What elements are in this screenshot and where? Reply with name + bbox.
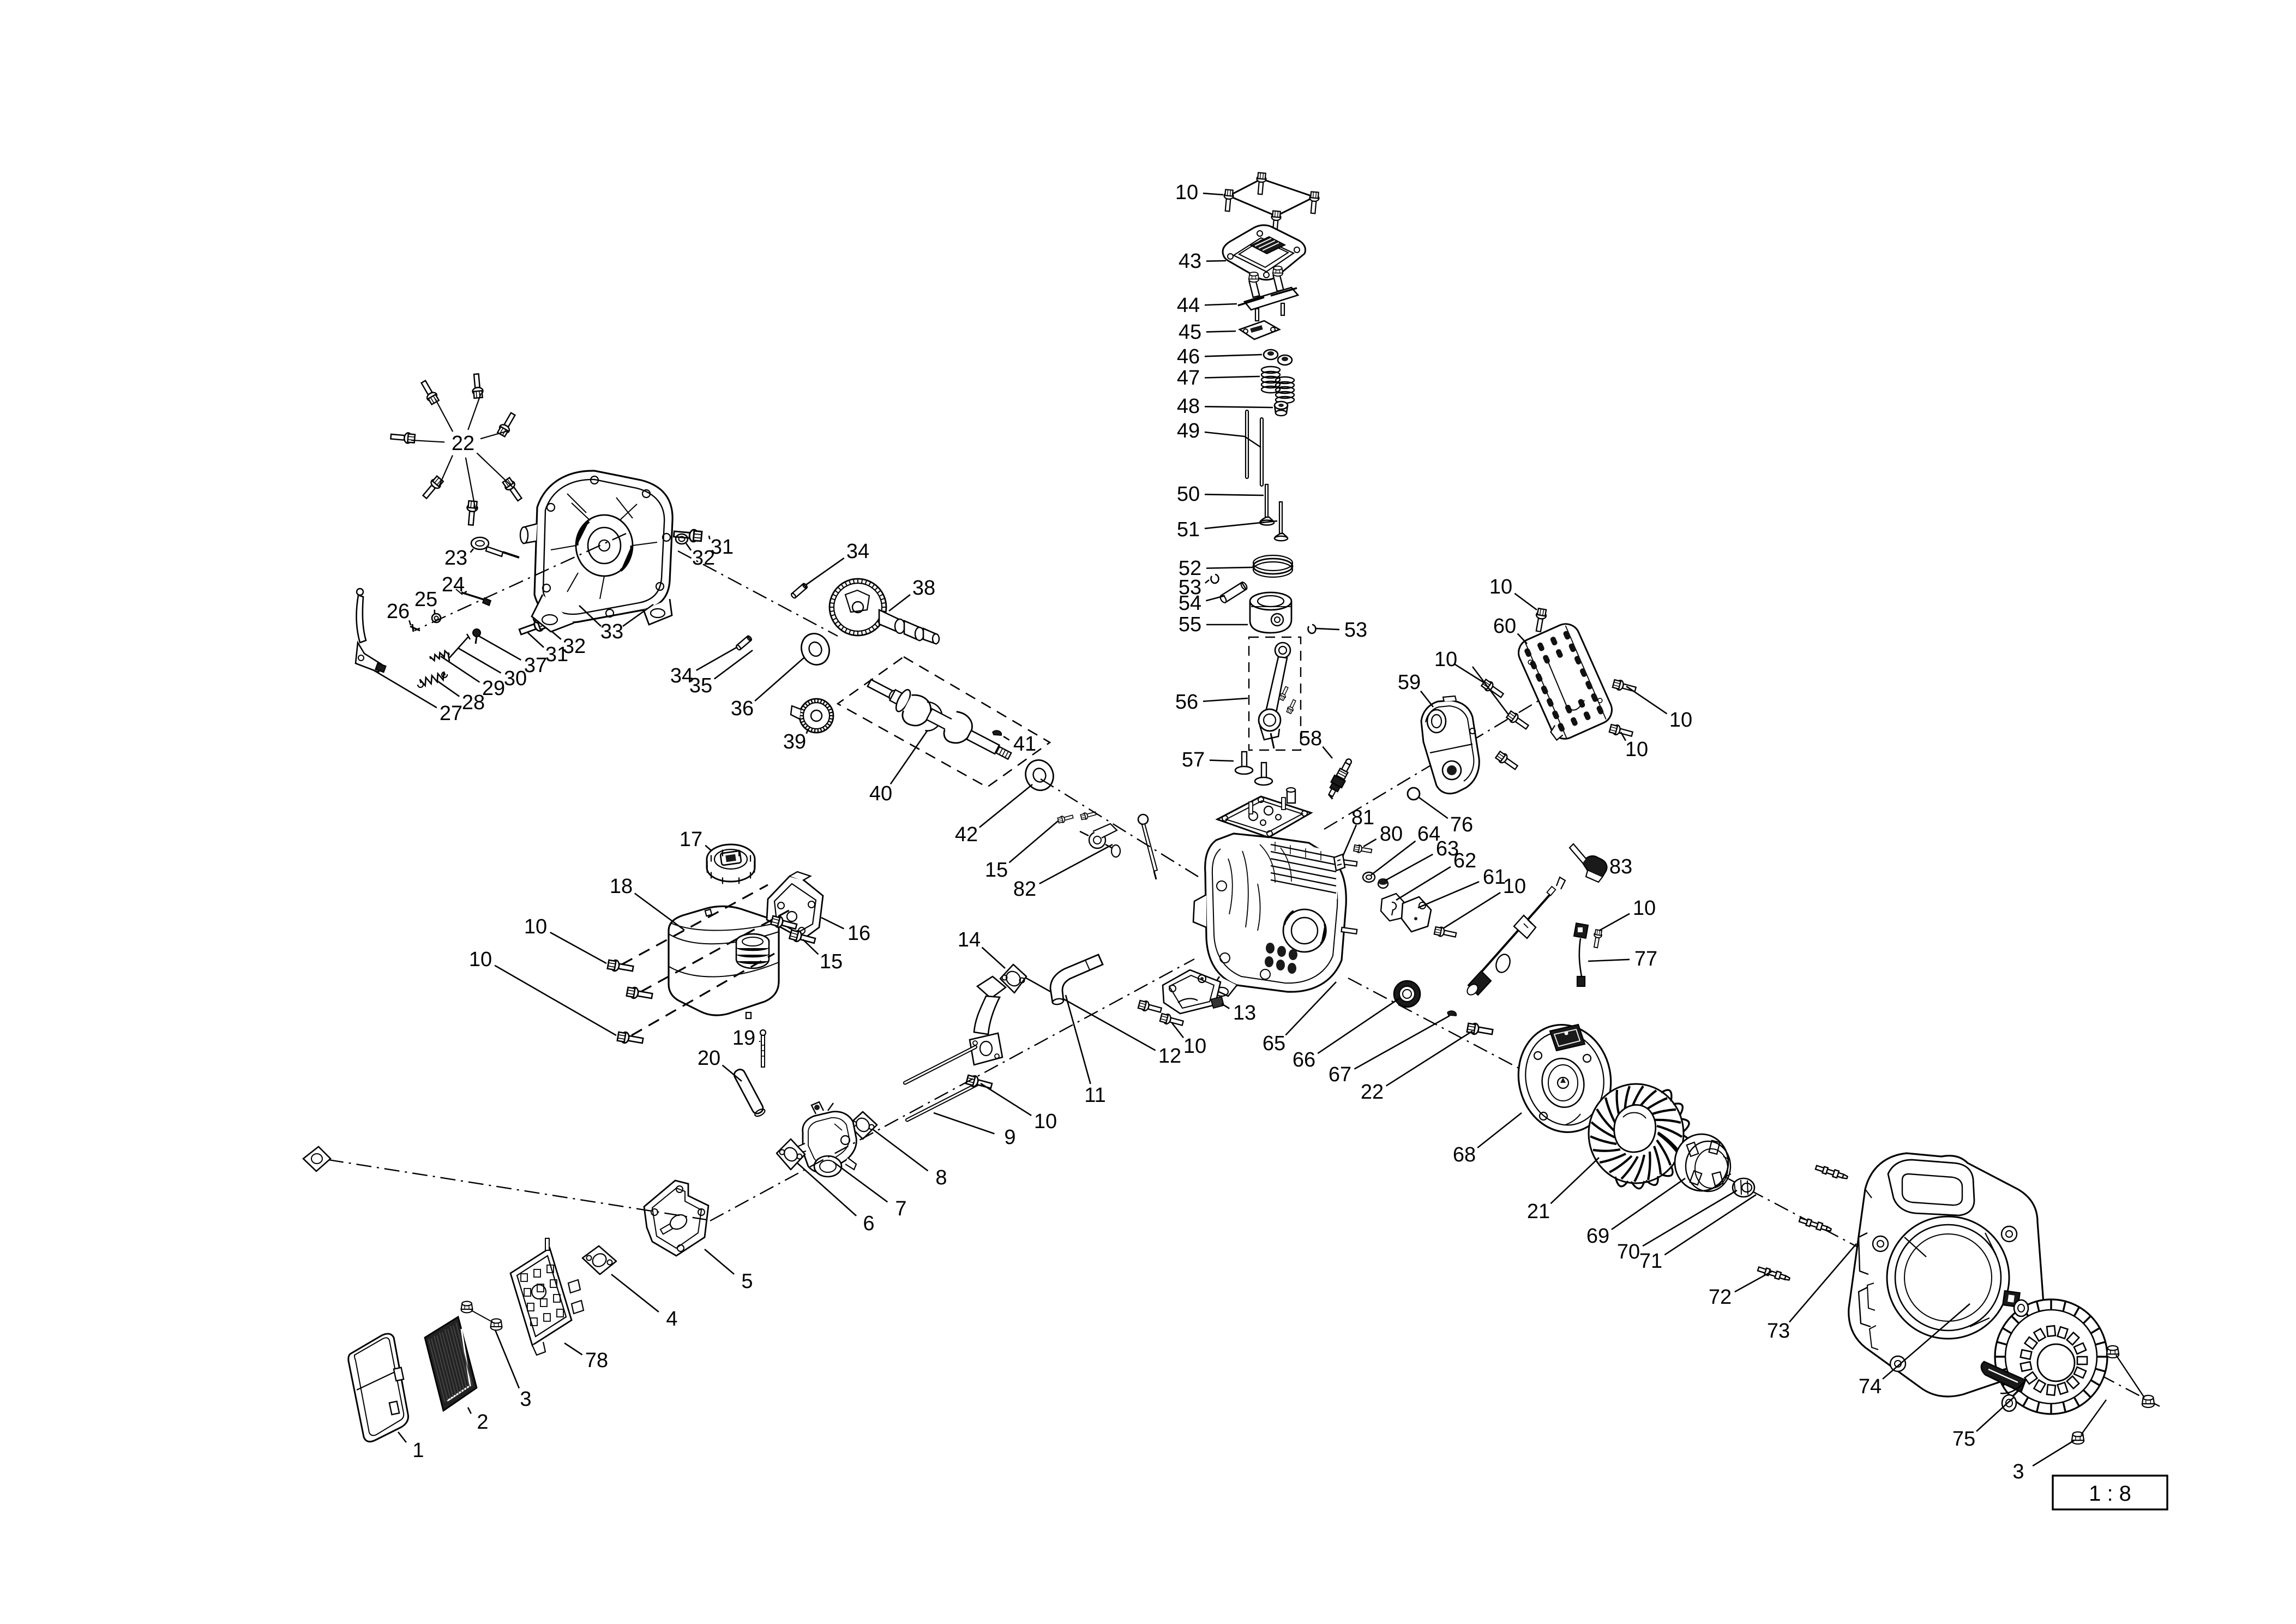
- svg-text:55: 55: [1179, 613, 1201, 636]
- svg-text:13: 13: [1233, 1002, 1256, 1024]
- svg-text:25: 25: [414, 588, 437, 611]
- svg-text:60: 60: [1493, 615, 1516, 638]
- svg-text:10: 10: [1633, 897, 1656, 920]
- svg-text:30: 30: [504, 667, 527, 690]
- svg-text:62: 62: [1453, 849, 1476, 872]
- svg-text:16: 16: [848, 922, 870, 945]
- svg-text:72: 72: [1709, 1286, 1732, 1309]
- svg-text:48: 48: [1177, 395, 1200, 418]
- svg-text:34: 34: [846, 540, 869, 563]
- svg-text:6: 6: [863, 1212, 874, 1235]
- svg-text:49: 49: [1177, 420, 1200, 442]
- svg-text:5: 5: [741, 1270, 753, 1293]
- svg-text:10: 10: [524, 915, 547, 938]
- svg-text:42: 42: [955, 823, 978, 846]
- svg-text:1: 1: [412, 1439, 424, 1462]
- svg-text:69: 69: [1586, 1225, 1609, 1248]
- svg-text:76: 76: [1450, 813, 1473, 836]
- svg-text:80: 80: [1380, 823, 1403, 846]
- svg-text:10: 10: [1034, 1110, 1057, 1133]
- svg-text:23: 23: [444, 547, 467, 570]
- svg-text:67: 67: [1329, 1063, 1351, 1086]
- svg-text:10: 10: [1669, 709, 1692, 732]
- svg-text:10: 10: [1503, 875, 1526, 898]
- svg-text:77: 77: [1634, 948, 1657, 970]
- svg-text:7: 7: [895, 1197, 906, 1220]
- svg-text:33: 33: [600, 620, 623, 643]
- svg-text:8: 8: [935, 1166, 947, 1189]
- svg-text:61: 61: [1483, 866, 1506, 889]
- svg-text:11: 11: [1084, 1084, 1105, 1107]
- svg-text:15: 15: [985, 859, 1008, 882]
- svg-text:43: 43: [1179, 250, 1201, 273]
- svg-text:65: 65: [1263, 1032, 1285, 1055]
- svg-text:32: 32: [692, 547, 715, 570]
- svg-text:54: 54: [1179, 592, 1201, 615]
- svg-text:37: 37: [524, 654, 547, 677]
- svg-text:27: 27: [440, 702, 462, 725]
- svg-text:71: 71: [1639, 1250, 1662, 1273]
- svg-text:74: 74: [1859, 1375, 1882, 1398]
- svg-text:59: 59: [1398, 671, 1421, 694]
- svg-text:38: 38: [912, 577, 935, 600]
- svg-text:53: 53: [1344, 619, 1367, 642]
- svg-text:10: 10: [469, 948, 492, 971]
- svg-text:1 : 8: 1 : 8: [2089, 1482, 2131, 1506]
- svg-text:75: 75: [1952, 1428, 1975, 1451]
- svg-text:9: 9: [1004, 1126, 1015, 1149]
- svg-text:17: 17: [680, 828, 702, 851]
- svg-text:58: 58: [1299, 727, 1322, 750]
- svg-text:81: 81: [1351, 806, 1374, 829]
- svg-text:24: 24: [442, 573, 465, 596]
- svg-text:21: 21: [1527, 1200, 1550, 1223]
- svg-text:70: 70: [1617, 1241, 1640, 1263]
- svg-text:66: 66: [1293, 1048, 1315, 1071]
- svg-text:36: 36: [731, 697, 754, 720]
- svg-text:10: 10: [1175, 181, 1198, 204]
- svg-text:73: 73: [1767, 1320, 1790, 1343]
- svg-text:41: 41: [1013, 733, 1036, 756]
- svg-text:15: 15: [820, 950, 843, 973]
- svg-text:57: 57: [1182, 748, 1205, 771]
- svg-text:18: 18: [610, 875, 633, 898]
- svg-text:32: 32: [563, 635, 586, 658]
- svg-text:3: 3: [520, 1388, 531, 1411]
- svg-text:39: 39: [783, 730, 806, 753]
- svg-text:45: 45: [1179, 321, 1201, 344]
- svg-text:10: 10: [1183, 1035, 1206, 1058]
- svg-text:12: 12: [1158, 1045, 1181, 1068]
- svg-text:4: 4: [666, 1308, 677, 1331]
- svg-text:82: 82: [1013, 878, 1036, 901]
- svg-text:50: 50: [1177, 483, 1200, 506]
- svg-text:35: 35: [689, 674, 712, 697]
- svg-text:83: 83: [1609, 855, 1632, 878]
- svg-text:28: 28: [462, 691, 485, 714]
- svg-text:22: 22: [452, 432, 474, 455]
- svg-text:10: 10: [1625, 738, 1648, 761]
- svg-text:22: 22: [1361, 1081, 1384, 1104]
- svg-text:10: 10: [1489, 576, 1512, 598]
- svg-text:44: 44: [1177, 294, 1200, 317]
- svg-text:29: 29: [482, 677, 505, 700]
- svg-text:14: 14: [958, 928, 981, 951]
- svg-text:51: 51: [1177, 518, 1200, 541]
- svg-text:19: 19: [732, 1027, 755, 1050]
- svg-text:78: 78: [585, 1349, 608, 1372]
- svg-text:40: 40: [869, 782, 892, 805]
- svg-text:2: 2: [477, 1411, 488, 1434]
- svg-text:56: 56: [1175, 691, 1198, 714]
- svg-text:26: 26: [387, 600, 410, 623]
- svg-text:3: 3: [2012, 1460, 2024, 1483]
- svg-text:46: 46: [1177, 345, 1200, 368]
- svg-text:68: 68: [1453, 1143, 1476, 1166]
- svg-text:10: 10: [1434, 648, 1457, 671]
- svg-text:20: 20: [698, 1047, 720, 1070]
- svg-text:47: 47: [1177, 367, 1200, 389]
